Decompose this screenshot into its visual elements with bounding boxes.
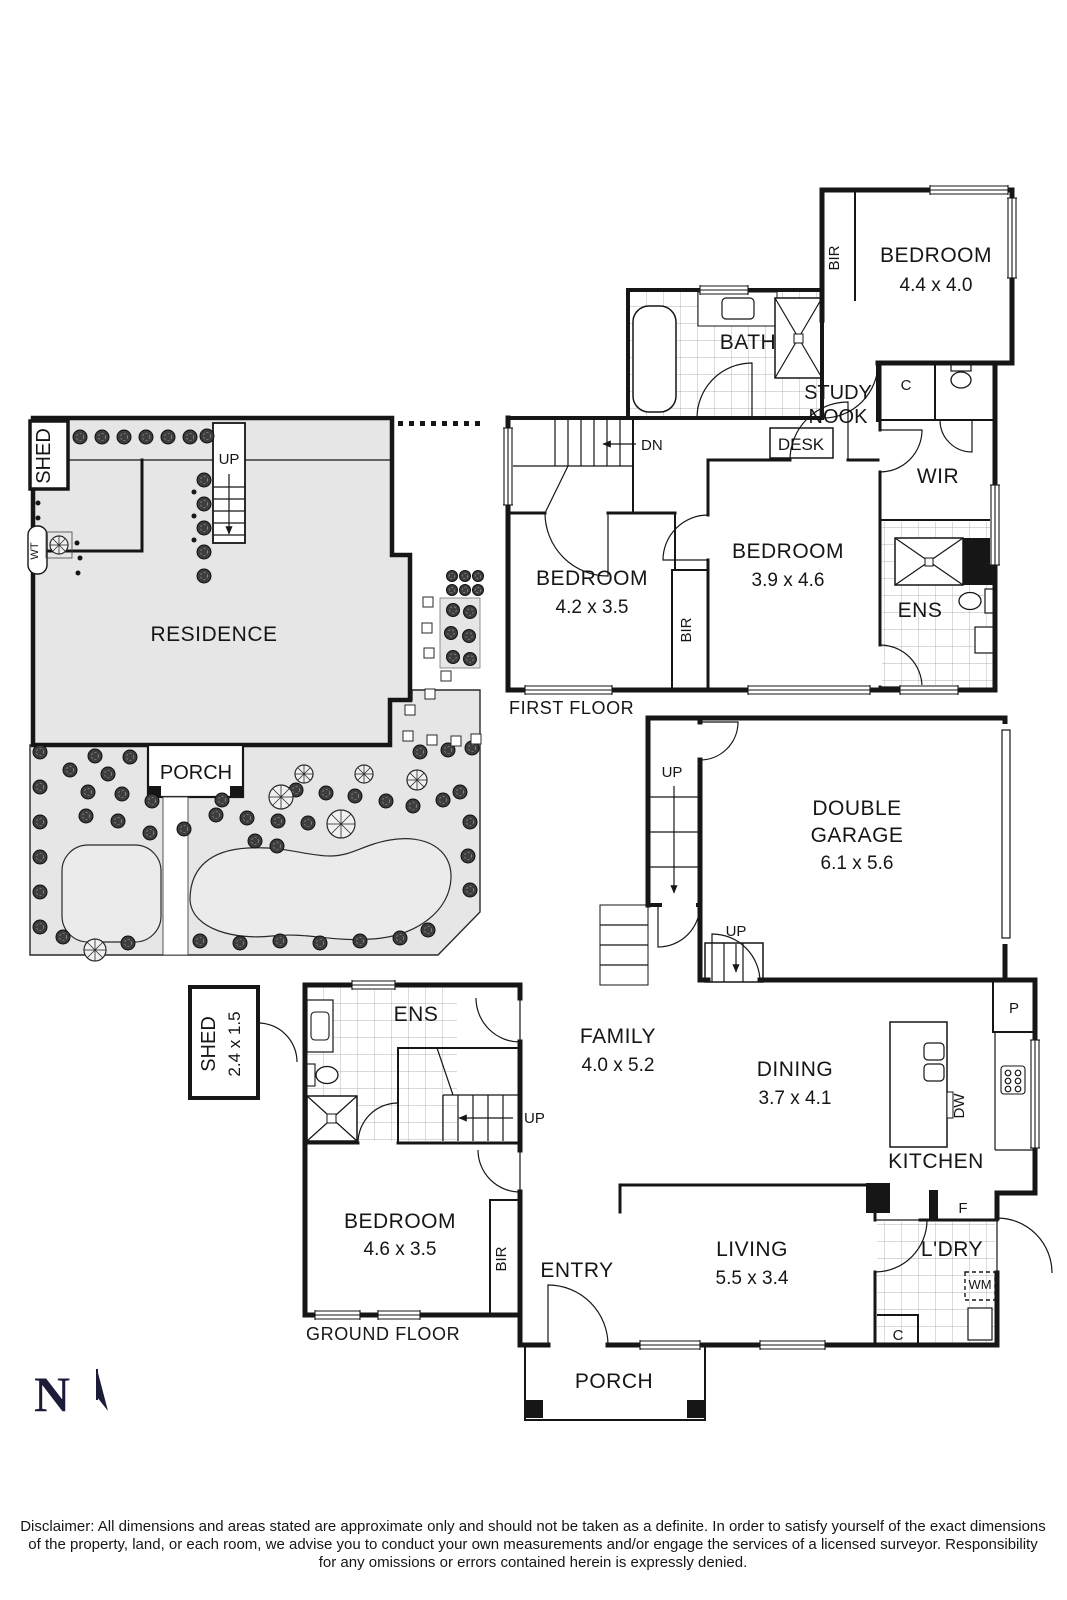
- plant-dot: [75, 541, 80, 546]
- family-dim: 4.0 x 5.2: [582, 1055, 655, 1076]
- family-label: FAMILY: [580, 1025, 656, 1048]
- fence-dot: [453, 421, 458, 426]
- sink-bowl: [924, 1064, 944, 1081]
- stepping-stone: [423, 597, 433, 607]
- ff-bedroom2-dim: 4.2 x 3.5: [556, 597, 629, 618]
- ff-ens-label: ENS: [898, 599, 943, 622]
- shrub-icon: [353, 934, 367, 948]
- gf-ens-label: ENS: [394, 1003, 439, 1026]
- gf-porch-pillar: [687, 1400, 705, 1418]
- shrub-icon: [177, 822, 191, 836]
- shrub-icon: [56, 930, 70, 944]
- wm-label: WM: [968, 1277, 991, 1292]
- shrub-icon: [200, 429, 214, 443]
- stepping-stone: [471, 734, 481, 744]
- shrub-icon: [445, 627, 458, 640]
- shrub-icon: [115, 787, 129, 801]
- plant-dot: [192, 514, 197, 519]
- living-dim: 5.5 x 3.4: [716, 1268, 789, 1289]
- garden-path: [163, 797, 188, 955]
- ff-bedroom3-dim: 3.9 x 4.6: [752, 570, 825, 591]
- fridge-wall-stub: [929, 1190, 938, 1220]
- garage-door-panel: [1002, 730, 1010, 938]
- shrub-icon: [95, 430, 109, 444]
- shrub-icon: [464, 606, 477, 619]
- shrub-icon: [447, 585, 458, 596]
- laundry-tub: [968, 1308, 992, 1340]
- stepping-stone: [427, 735, 437, 745]
- lawn-left: [62, 845, 161, 942]
- ff-bedroom1-dim: 4.4 x 4.0: [900, 275, 973, 296]
- plant-dot: [36, 516, 41, 521]
- shrub-icon: [413, 745, 427, 759]
- shrub-icon: [33, 920, 47, 934]
- shrub-icon: [197, 473, 211, 487]
- shrub-icon: [117, 430, 131, 444]
- shrub-icon: [248, 834, 262, 848]
- gf-ens-cistern: [307, 1064, 315, 1086]
- shrub-icon: [271, 814, 285, 828]
- up-stairs-label: UP: [524, 1110, 545, 1127]
- garage-label1: DOUBLE: [812, 797, 901, 820]
- shrub-icon: [460, 585, 471, 596]
- garage-label2: GARAGE: [811, 824, 904, 847]
- first-floor-caption: FIRST FLOOR: [509, 698, 634, 718]
- shrub-icon: [63, 763, 77, 777]
- stepping-stone: [405, 705, 415, 715]
- gf-ens-toilet: [316, 1067, 338, 1084]
- kitchen-island: [890, 1022, 947, 1147]
- fence-dot: [431, 421, 436, 426]
- shrub-icon: [139, 430, 153, 444]
- shrub-icon: [379, 794, 393, 808]
- gf-shed-dim: 2.4 x 1.5: [225, 1011, 244, 1076]
- plant-dot: [76, 571, 81, 576]
- ff-bedroom2-label: BEDROOM: [536, 567, 648, 590]
- stepping-stone: [451, 736, 461, 746]
- shrub-icon: [101, 767, 115, 781]
- shrub-icon: [81, 785, 95, 799]
- stepping-stone: [424, 648, 434, 658]
- shrub-icon: [447, 604, 460, 617]
- shrub-icon: [123, 750, 137, 764]
- shrub-icon: [453, 785, 467, 799]
- water-tank-label: WT: [29, 542, 41, 559]
- residence-label: RESIDENCE: [150, 623, 277, 646]
- shrub-icon: [33, 885, 47, 899]
- shrub-icon: [209, 808, 223, 822]
- ff-closet-label: C: [901, 377, 912, 394]
- shrub-icon: [406, 799, 420, 813]
- ens-vanity: [975, 627, 995, 653]
- gf-bedroom-dim: 4.6 x 3.5: [364, 1239, 437, 1260]
- shrub-icon: [421, 923, 435, 937]
- north-label: N: [34, 1366, 70, 1422]
- dining-dim: 3.7 x 4.1: [759, 1088, 832, 1109]
- shrub-icon: [73, 430, 87, 444]
- shrub-icon: [464, 653, 477, 666]
- shrub-icon: [313, 936, 327, 950]
- shrub-icon: [463, 883, 477, 897]
- ff-bath-label: BATH: [720, 331, 776, 354]
- bathtub: [633, 306, 676, 412]
- gf-closet-label: C: [893, 1327, 904, 1344]
- cooktop: [1001, 1066, 1025, 1094]
- ff-bedroom1-label: BEDROOM: [880, 244, 992, 267]
- up-garage-label: UP: [726, 923, 747, 940]
- laundry-label: L'DRY: [921, 1238, 983, 1261]
- desk-label: DESK: [778, 435, 825, 454]
- kitchen-label: KITCHEN: [888, 1150, 984, 1173]
- gf-ens-drain: [327, 1114, 336, 1123]
- gf-porch-pillar: [525, 1400, 543, 1418]
- shrub-icon: [197, 545, 211, 559]
- compass: N: [34, 1366, 108, 1422]
- shrub-icon: [273, 934, 287, 948]
- shrub-icon: [88, 749, 102, 763]
- garage-steps: [705, 943, 763, 982]
- dining-label: DINING: [757, 1058, 834, 1081]
- shrub-icon: [461, 849, 475, 863]
- shrub-icon: [33, 815, 47, 829]
- disclaimer: Disclaimer: All dimensions and areas sta…: [20, 1518, 1046, 1571]
- stepping-stone: [425, 689, 435, 699]
- shrub-icon: [197, 569, 211, 583]
- floorplan-page: SHED WT UP RESIDENCE PORCH: [0, 0, 1067, 1600]
- ff-bir1-label: BIR: [826, 245, 843, 270]
- shrub-icon: [193, 934, 207, 948]
- shrub-icon: [463, 815, 477, 829]
- ens-toilet: [959, 593, 981, 610]
- shrub-icon: [145, 794, 159, 808]
- up-side-label: UP: [662, 764, 683, 781]
- living-label: LIVING: [716, 1238, 788, 1261]
- shrub-icon: [197, 497, 211, 511]
- gf-bir-label: BIR: [493, 1246, 510, 1271]
- ff-bir2-label: BIR: [678, 617, 695, 642]
- gf-ens-basin: [311, 1012, 329, 1040]
- fence-dot: [475, 421, 480, 426]
- shrub-icon: [161, 430, 175, 444]
- gf-bedroom-label: BEDROOM: [344, 1210, 456, 1233]
- shrub-icon: [463, 630, 476, 643]
- disclaimer-line1: Disclaimer: All dimensions and areas sta…: [20, 1518, 1046, 1535]
- fence-dot: [409, 421, 414, 426]
- north-arrow-icon: [97, 1369, 108, 1411]
- wc-toilet: [951, 372, 971, 388]
- disclaimer-line2: of the property, land, or each room, we …: [28, 1536, 1038, 1553]
- bath-basin: [722, 298, 754, 319]
- shrub-icon: [233, 936, 247, 950]
- shrub-icon: [301, 816, 315, 830]
- shrub-icon: [319, 786, 333, 800]
- site-plan: SHED WT UP RESIDENCE PORCH: [28, 418, 484, 961]
- fence-dot: [442, 421, 447, 426]
- shrub-icon: [460, 571, 471, 582]
- stepping-stone: [441, 671, 451, 681]
- shrub-icon: [33, 745, 47, 759]
- shrub-icon: [436, 793, 450, 807]
- ff-stairs: [508, 420, 633, 513]
- gf-porch-label: PORCH: [575, 1370, 653, 1393]
- shrub-icon: [121, 936, 135, 950]
- shrub-icon: [447, 571, 458, 582]
- site-up-label: UP: [219, 451, 240, 468]
- shrub-icon: [33, 850, 47, 864]
- shrub-icon: [111, 814, 125, 828]
- dishwasher-label: DW: [951, 1093, 968, 1119]
- fence-dot: [398, 421, 403, 426]
- shrub-icon: [33, 780, 47, 794]
- stepping-stone: [422, 623, 432, 633]
- shrub-icon: [215, 793, 229, 807]
- garage-dim: 6.1 x 5.6: [821, 853, 894, 874]
- ff-bedroom3-label: BEDROOM: [732, 540, 844, 563]
- fence-dot: [420, 421, 425, 426]
- shrub-icon: [143, 826, 157, 840]
- shrub-icon: [79, 809, 93, 823]
- site-shed-label: SHED: [33, 428, 55, 484]
- entry-label: ENTRY: [540, 1259, 613, 1282]
- shrub-icon: [197, 521, 211, 535]
- shrub-icon: [473, 585, 484, 596]
- plant-dot: [36, 501, 41, 506]
- porch-pillar: [230, 786, 243, 797]
- wir-label: WIR: [917, 465, 959, 488]
- sink-bowl: [924, 1043, 944, 1060]
- shrub-icon: [348, 789, 362, 803]
- shrub-icon: [473, 571, 484, 582]
- shower-drain: [794, 334, 803, 343]
- shrub-icon: [447, 651, 460, 664]
- disclaimer-line3: for any omissions or errors contained he…: [319, 1554, 748, 1571]
- first-floor-plan: BEDROOM 4.4 x 4.0 BIR BATH STUDY NOOK DE…: [503, 185, 1017, 718]
- plant-dot: [192, 490, 197, 495]
- living-pillar: [866, 1183, 890, 1213]
- floorplan-svg: SHED WT UP RESIDENCE PORCH: [0, 0, 1067, 1600]
- site-porch-label: PORCH: [160, 762, 232, 784]
- fridge-label: F: [958, 1200, 967, 1217]
- ground-floor-caption: GROUND FLOOR: [306, 1324, 460, 1344]
- pantry-label: P: [1009, 1000, 1019, 1017]
- ff-nook-label: NOOK: [809, 406, 869, 428]
- fence-dot: [464, 421, 469, 426]
- shrub-icon: [393, 931, 407, 945]
- plant-dot: [192, 538, 197, 543]
- plant-dot: [78, 556, 83, 561]
- ens-drain: [925, 558, 933, 566]
- shrub-icon: [240, 811, 254, 825]
- gf-shed-label: SHED: [198, 1016, 220, 1072]
- shrub-icon: [183, 430, 197, 444]
- stepping-stone: [403, 731, 413, 741]
- ff-study-label: STUDY: [804, 382, 872, 404]
- dn-label: DN: [641, 437, 663, 454]
- shrub-icon: [270, 839, 284, 853]
